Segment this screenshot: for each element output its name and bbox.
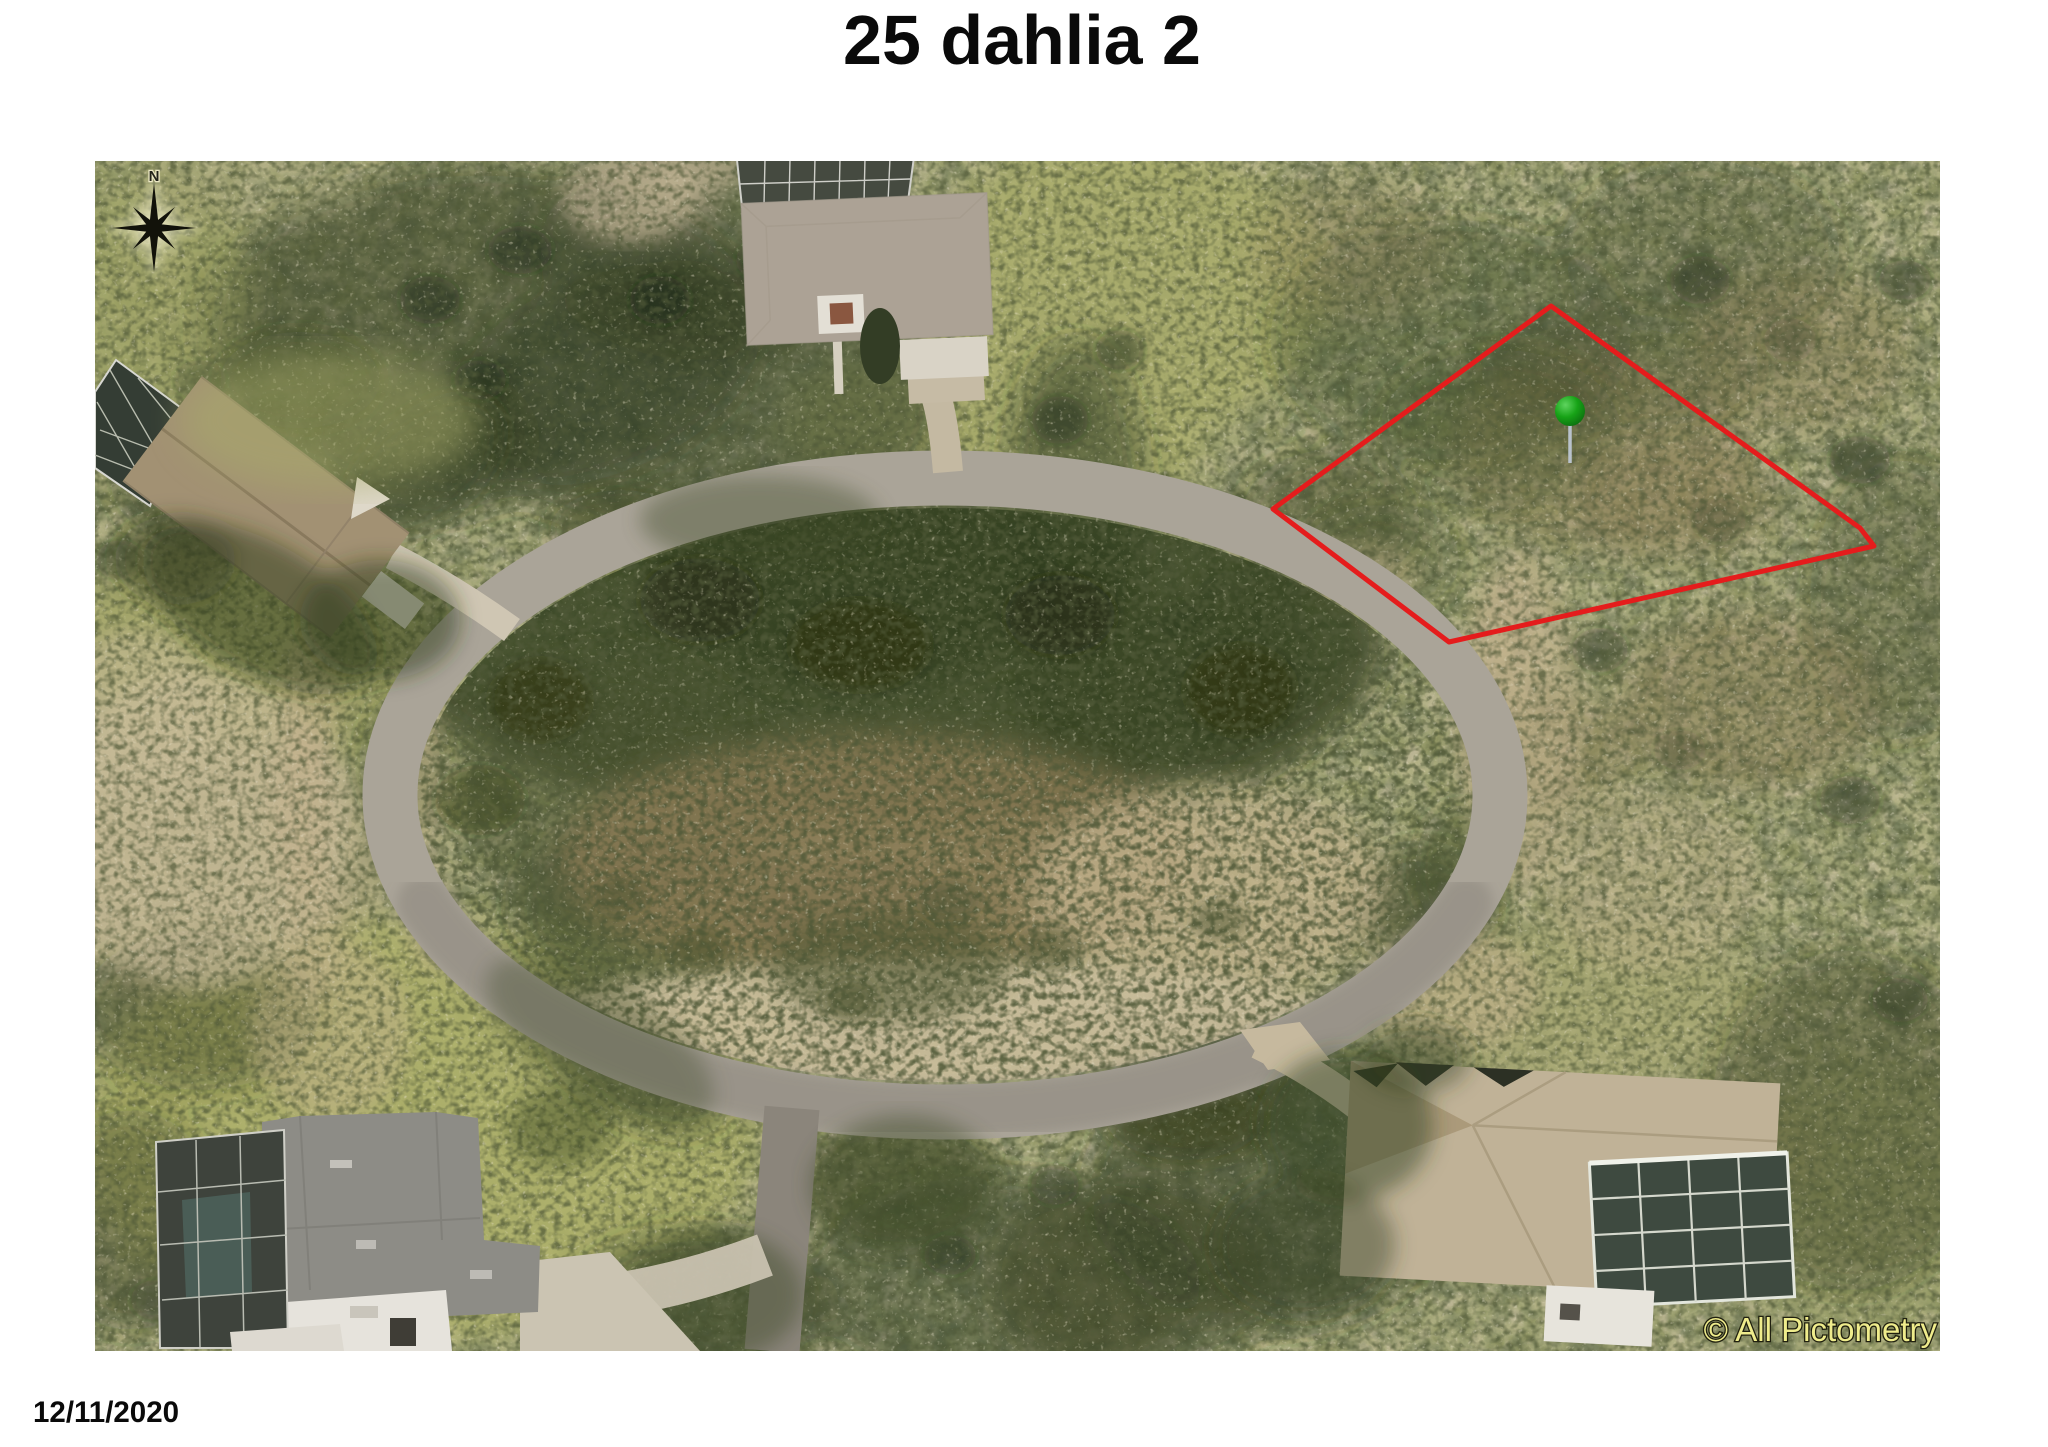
svg-text:© All Pictometry: © All Pictometry — [1704, 1311, 1938, 1348]
svg-text:12/11/2020: 12/11/2020 — [33, 1396, 179, 1429]
svg-text:25 dahlia 2: 25 dahlia 2 — [843, 1, 1201, 79]
svg-text:N: N — [149, 168, 160, 185]
